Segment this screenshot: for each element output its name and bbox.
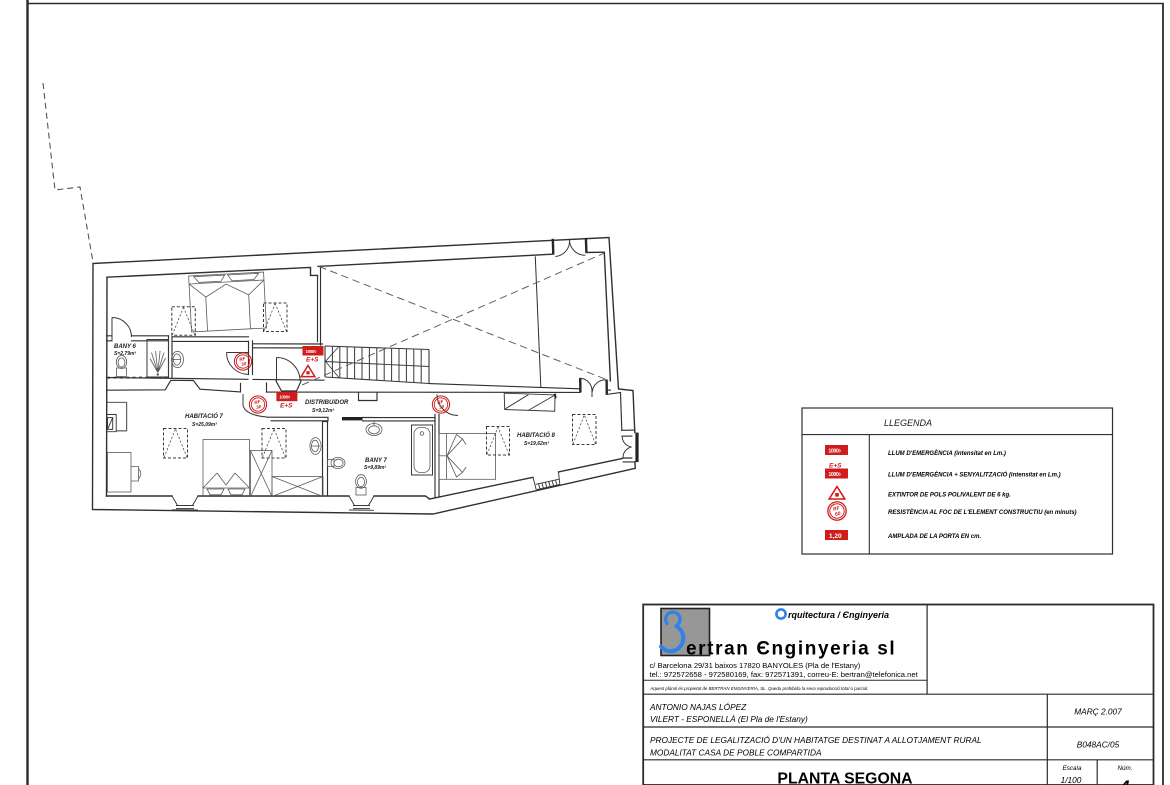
svg-text:S=9,89m²: S=9,89m² xyxy=(364,465,386,471)
svg-text:1000◊: 1000◊ xyxy=(829,449,842,455)
svg-text:S=25,09m²: S=25,09m² xyxy=(192,422,217,428)
svg-text:E+S: E+S xyxy=(829,463,842,470)
svg-text:BANY 6: BANY 6 xyxy=(114,344,137,350)
svg-text:S=9,12m²: S=9,12m² xyxy=(312,408,334,414)
svg-text:Núm.: Núm. xyxy=(1117,765,1132,772)
svg-text:Escala: Escala xyxy=(1063,765,1082,772)
svg-text:VILERT - ESPONELLÀ (El Pla de: VILERT - ESPONELLÀ (El Pla de l'Estany) xyxy=(650,714,808,724)
svg-text:tel.: 972572658 - 972580169, f: tel.: 972572658 - 972580169, fax: 972571… xyxy=(650,670,919,679)
svg-text:AMPLADA DE LA PORTA EN cm.: AMPLADA DE LA PORTA EN cm. xyxy=(887,534,981,540)
svg-text:ertran Єnginyeria sl: ertran Єnginyeria sl xyxy=(686,639,896,660)
svg-text:1000◊: 1000◊ xyxy=(279,395,291,400)
svg-text:HABITACIÓ 8: HABITACIÓ 8 xyxy=(517,432,556,439)
svg-text:ANTONIO NAJAS LÓPEZ: ANTONIO NAJAS LÓPEZ xyxy=(649,702,747,712)
svg-text:B048AC/05: B048AC/05 xyxy=(1077,740,1120,750)
svg-text:1000◊: 1000◊ xyxy=(829,472,842,478)
svg-text:BANY 7: BANY 7 xyxy=(365,458,388,464)
svg-text:c/ Barcelona 29/31 baixos 1782: c/ Barcelona 29/31 baixos 17820 BANYOLES… xyxy=(650,661,861,670)
svg-text:E+S: E+S xyxy=(280,403,293,410)
svg-text:LLEGENDA: LLEGENDA xyxy=(884,418,932,428)
svg-text:LLUM D'EMERGÈNCIA + SENYALITZA: LLUM D'EMERGÈNCIA + SENYALITZACIÓ (inten… xyxy=(888,471,1061,479)
svg-text:1000◊: 1000◊ xyxy=(306,349,318,354)
svg-text:1,20: 1,20 xyxy=(829,533,842,540)
svg-text:MARÇ 2.007: MARÇ 2.007 xyxy=(1074,707,1122,717)
svg-text:PLANTA SEGONA: PLANTA SEGONA xyxy=(777,771,912,785)
svg-text:S=19,62m²: S=19,62m² xyxy=(524,441,549,447)
svg-text:1/100: 1/100 xyxy=(1061,775,1082,785)
svg-text:4: 4 xyxy=(1120,779,1130,785)
svg-text:MODALITAT CASA DE POBLE COMPAR: MODALITAT CASA DE POBLE COMPARTIDA xyxy=(650,748,822,758)
svg-text:E+S: E+S xyxy=(306,357,319,364)
svg-text:HABITACIÓ 7: HABITACIÓ 7 xyxy=(185,413,224,420)
svg-text:RESISTÈNCIA AL FOC DE L'ELEMEN: RESISTÈNCIA AL FOC DE L'ELEMENT CONSTRUC… xyxy=(888,508,1077,516)
svg-text:LLUM D'EMERGÈNCIA (intensitat: LLUM D'EMERGÈNCIA (intensitat en Lm.) xyxy=(888,449,1006,457)
svg-text:S=2,79m²: S=2,79m² xyxy=(114,351,136,357)
svg-text:Aquest plànol és propietat de: Aquest plànol és propietat de BERTRAN EN… xyxy=(650,686,869,691)
svg-text:EXTINTOR DE POLS POLIVALENT DE: EXTINTOR DE POLS POLIVALENT DE 6 kg. xyxy=(888,493,1011,499)
svg-text:DISTRIBUïDOR: DISTRIBUïDOR xyxy=(305,400,349,406)
svg-text:rquitectura / Єnginyeria: rquitectura / Єnginyeria xyxy=(788,610,889,620)
svg-text:PROJECTE DE LEGALITZACIÓ D'UN: PROJECTE DE LEGALITZACIÓ D'UN HABITATGE … xyxy=(650,735,982,745)
